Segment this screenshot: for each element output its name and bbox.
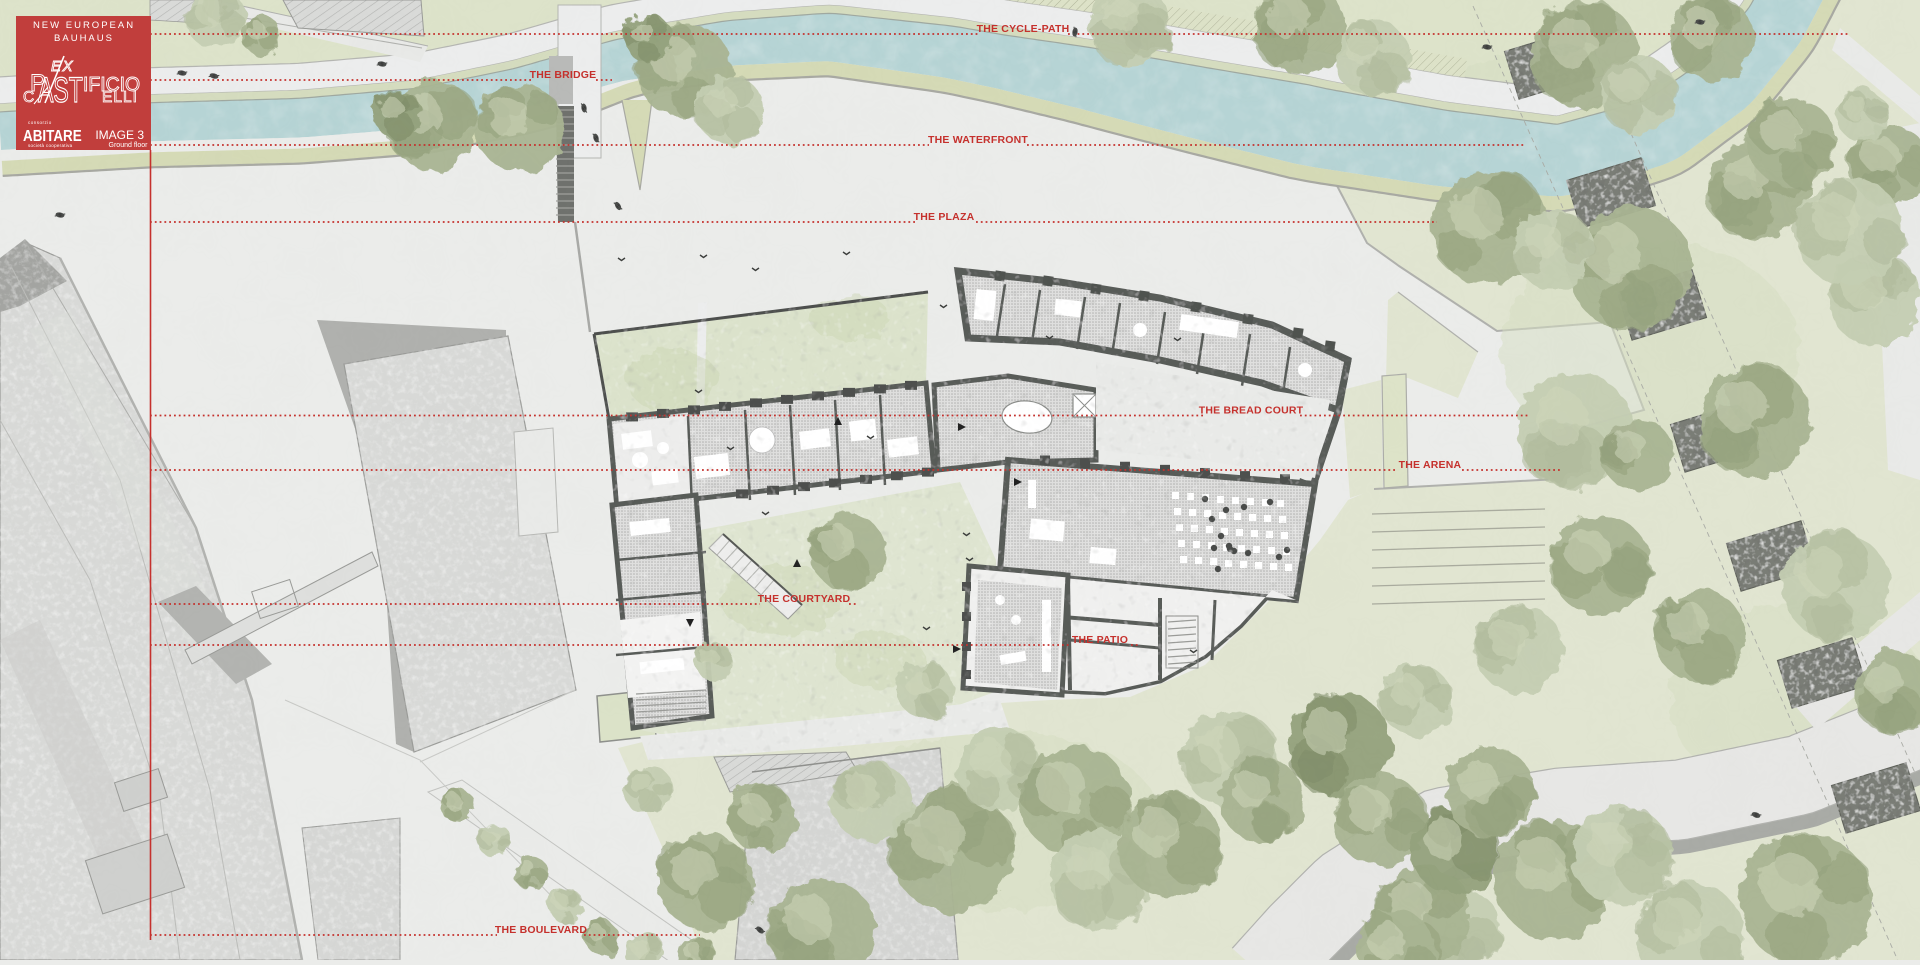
svg-text:C: C	[23, 89, 34, 106]
svg-text:BAUHAUS: BAUHAUS	[54, 33, 114, 44]
svg-text:consorzio: consorzio	[28, 120, 52, 125]
svg-text:NEW EUROPEAN: NEW EUROPEAN	[33, 20, 135, 31]
svg-text:Ground floor: Ground floor	[109, 142, 149, 149]
svg-text:ELLI: ELLI	[102, 89, 138, 106]
svg-text:IMAGE 3: IMAGE 3	[95, 128, 144, 142]
svg-text:società cooperativa: società cooperativa	[28, 143, 73, 148]
